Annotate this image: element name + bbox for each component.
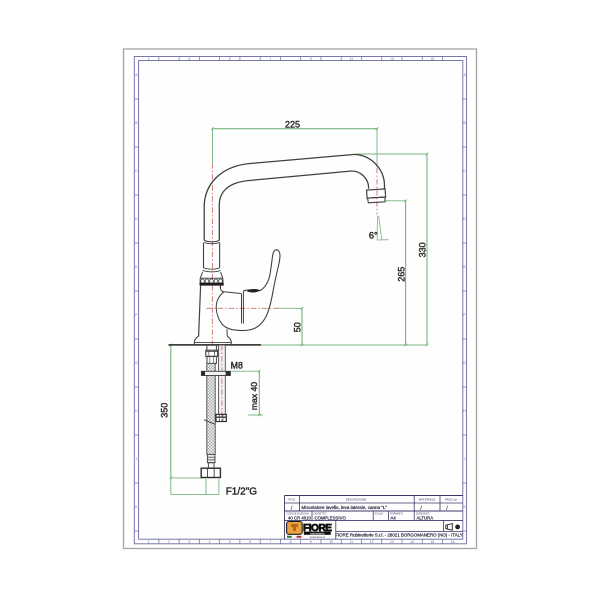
svg-text:www.fiore.it: www.fiore.it [310,535,326,539]
svg-text:F1/2"G: F1/2"G [226,487,258,498]
svg-text:16: 16 [451,540,455,544]
svg-text:225: 225 [285,120,300,130]
svg-text:3: 3 [188,57,190,61]
svg-text:1: 1 [148,57,150,61]
svg-text:/: / [446,505,448,512]
svg-text:Miscelatore lavello, leva late: Miscelatore lavello, leva laterale, cann… [302,505,388,510]
svg-text:6: 6 [249,540,251,544]
svg-text:9: 9 [310,540,312,544]
svg-text:F: F [135,313,137,317]
svg-text:15: 15 [431,57,435,61]
svg-text:5: 5 [229,540,231,544]
svg-text:A4: A4 [391,515,397,520]
svg-text:M8: M8 [231,360,243,370]
svg-text:DESCRIZIONE: DESCRIZIONE [346,498,367,502]
svg-text:2: 2 [168,540,170,544]
svg-text:/: / [291,505,293,512]
svg-text:COMPLESSIVO: COMPLESSIVO [315,515,347,520]
svg-text:max 40: max 40 [249,382,259,410]
svg-text:11: 11 [350,57,354,61]
svg-text:J: J [464,457,466,461]
svg-text:11: 11 [350,540,354,544]
svg-text:5: 5 [229,57,231,61]
svg-text:G: G [135,361,138,365]
svg-text:6°: 6° [369,230,378,240]
svg-text:350: 350 [159,403,169,418]
svg-text:7: 7 [269,540,271,544]
svg-text:MATERIALE: MATERIALE [419,498,436,502]
svg-text:7: 7 [269,57,271,61]
svg-text:265: 265 [397,267,407,282]
svg-text:F: F [464,313,466,317]
svg-text:J: J [136,457,138,461]
svg-text:12: 12 [370,540,374,544]
svg-text:1: 1 [148,540,150,544]
svg-text:4: 4 [209,540,211,544]
svg-text:10: 10 [329,540,333,544]
svg-text:ALTURA: ALTURA [417,515,434,520]
svg-text:PESO gr.: PESO gr. [445,498,458,502]
svg-text:9: 9 [310,57,312,61]
svg-text:40 CR 4610: 40 CR 4610 [288,515,312,520]
svg-text:14: 14 [410,540,414,544]
svg-text:3: 3 [188,540,190,544]
svg-text:13: 13 [390,540,394,544]
svg-text:G: G [463,361,466,365]
svg-text:POS.: POS. [288,498,295,502]
svg-text:FIORE Rubinetterie S.r.l. - 28: FIORE Rubinetterie S.r.l. - 28021 BORGOM… [335,533,463,538]
svg-text:50: 50 [292,322,302,332]
svg-text:/: / [420,505,422,512]
svg-text:330: 330 [417,242,427,257]
svg-text:15: 15 [431,540,435,544]
svg-text:SCALA: SCALA [375,512,384,516]
svg-text:13: 13 [390,57,394,61]
svg-text:8: 8 [290,540,292,544]
